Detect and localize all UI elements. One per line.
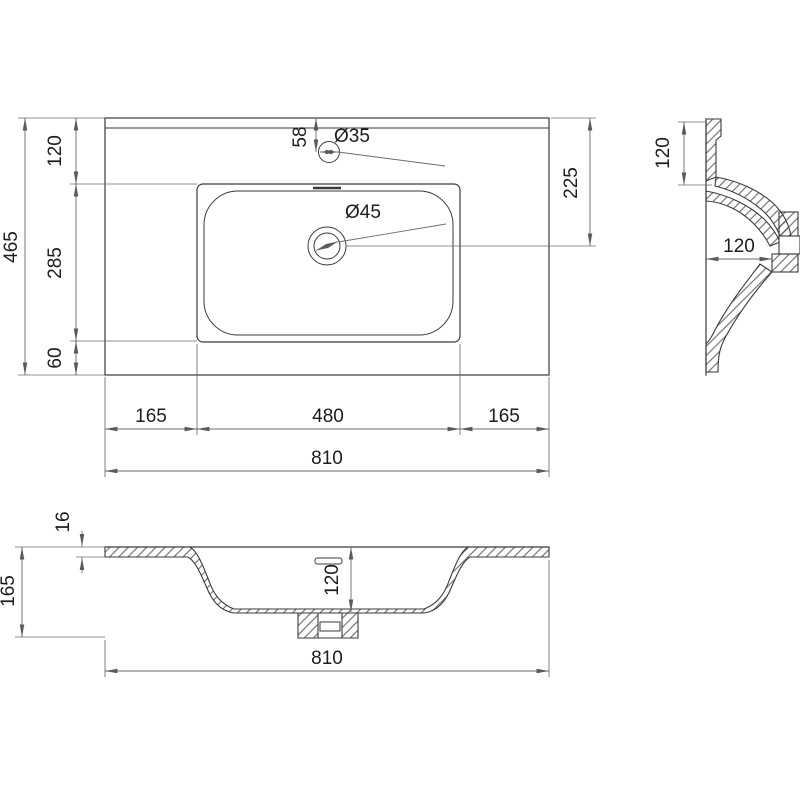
dim-overall-width-front: 810 [311, 648, 343, 669]
dim-overall-height: 165 [0, 575, 19, 607]
side-drain-channel [779, 236, 800, 254]
side-back-rim-section [706, 119, 721, 181]
drawing-canvas: 465 120 285 60 58 Ø35 Ø45 225 [0, 0, 800, 800]
plan-dimensions: 465 120 285 60 58 Ø35 Ø45 225 [1, 118, 596, 477]
dim-basin-width: 480 [312, 406, 344, 427]
plan-view: 465 120 285 60 58 Ø35 Ø45 225 [1, 118, 596, 477]
dim-back-ledge: 120 [45, 135, 66, 167]
plan-outline [105, 118, 549, 375]
basin-inner-edge [204, 191, 453, 335]
dim-front-bowl-depth: 120 [322, 564, 343, 596]
side-bowl-wall-lower-section [706, 264, 772, 372]
dim-side-bowl-depth: 120 [723, 236, 755, 257]
dim-drain-from-back: 225 [561, 167, 582, 199]
dim-drain-hole-dia: Ø45 [345, 202, 381, 223]
front-dimensions: 16 165 120 810 [0, 511, 549, 677]
dim-right-ledge: 165 [488, 406, 520, 427]
side-drain-boss-lower [772, 254, 798, 272]
overflow-slot-front [315, 558, 342, 564]
dim-left-ledge: 165 [135, 406, 167, 427]
countertop-outline [105, 118, 549, 375]
front-drain-boss-left [298, 613, 318, 638]
basin-outer-edge [197, 184, 460, 342]
front-drain-boss-right [342, 613, 358, 638]
front-drain-fitting-hole [320, 622, 340, 631]
dim-front-ledge: 60 [45, 347, 66, 368]
front-section-view: 16 165 120 810 [0, 511, 549, 677]
dim-side-back-ledge: 120 [653, 137, 674, 169]
dim-basin-depth: 285 [45, 247, 66, 279]
dim-faucet-offset: 58 [290, 126, 311, 147]
dim-rim-thickness: 16 [53, 511, 74, 532]
side-drain-boss-upper [779, 212, 798, 236]
technical-drawing-washbasin: 465 120 285 60 58 Ø35 Ø45 225 [0, 0, 800, 800]
dim-overall-width-plan: 810 [311, 448, 343, 469]
dim-faucet-hole-dia: Ø35 [334, 126, 370, 147]
side-section-view: 120 120 [653, 119, 800, 375]
dim-overall-depth: 465 [1, 231, 22, 263]
